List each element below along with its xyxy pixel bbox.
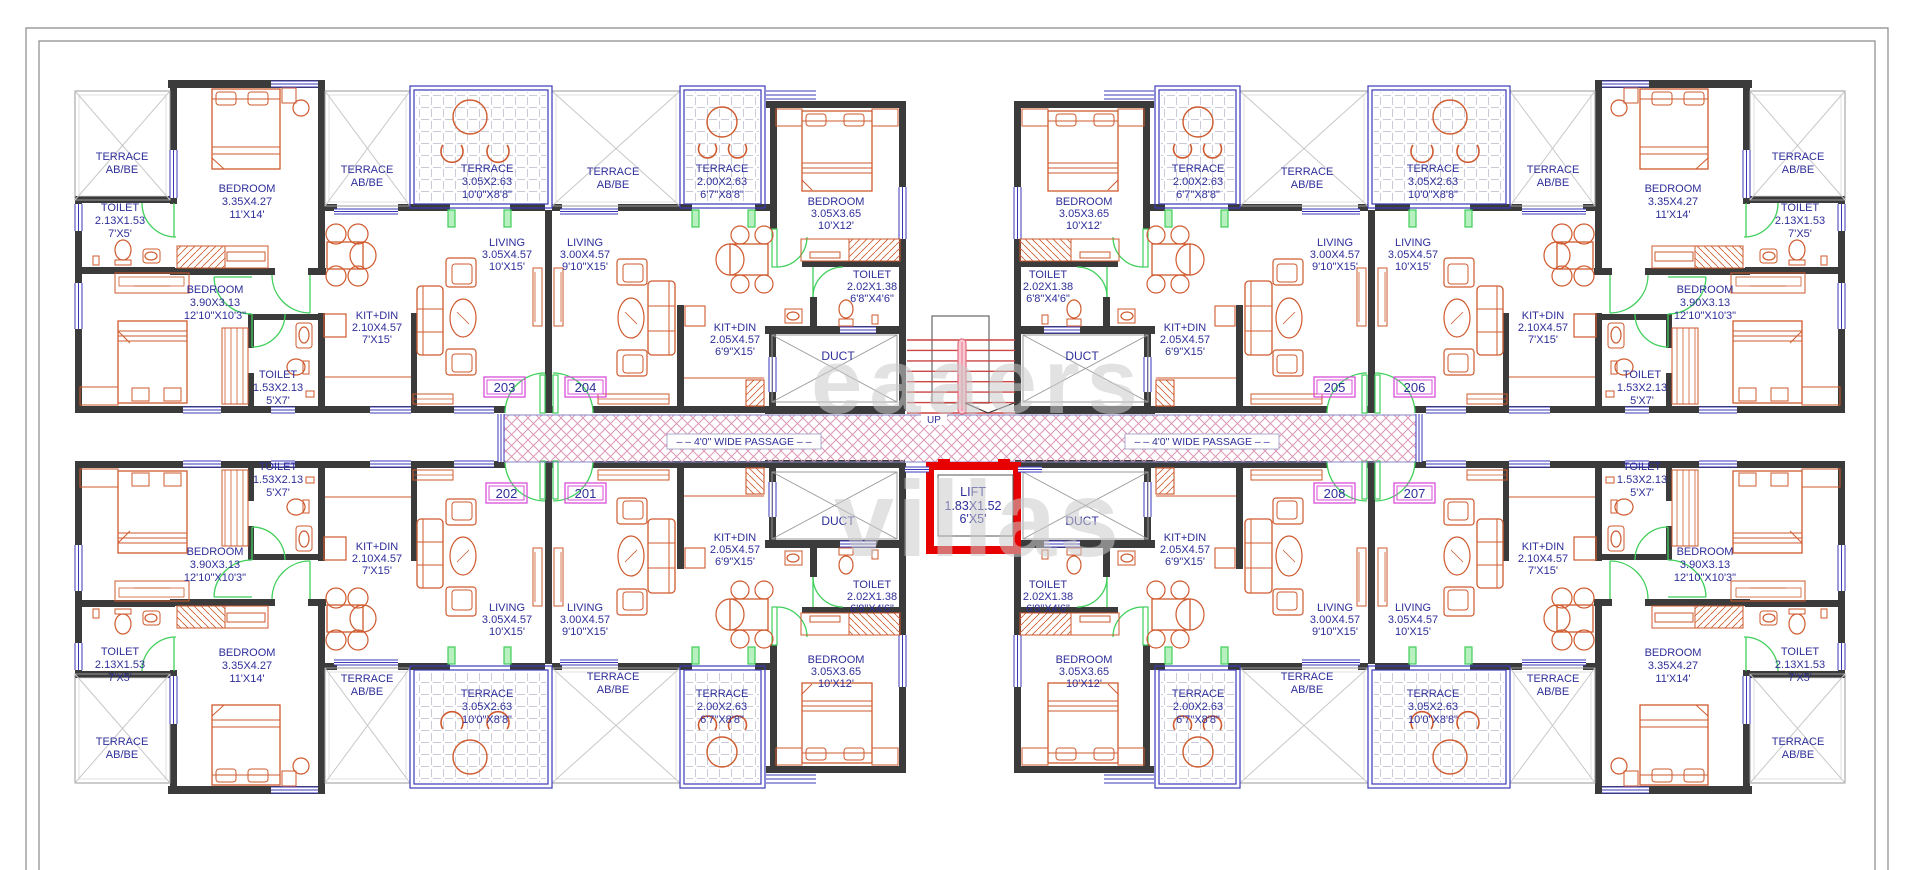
svg-text:7'X5': 7'X5' [108,228,132,240]
svg-text:BEDROOM: BEDROOM [219,183,276,195]
svg-text:KIT+DIN: KIT+DIN [356,541,399,553]
svg-text:2.13X1.53: 2.13X1.53 [95,215,145,227]
svg-text:10'X12': 10'X12' [1066,220,1102,232]
svg-text:LIVING: LIVING [567,602,603,614]
svg-text:TERRACE: TERRACE [1527,164,1580,176]
svg-text:TERRACE: TERRACE [1772,736,1825,748]
svg-text:TOILET: TOILET [101,202,140,214]
svg-text:TERRACE: TERRACE [1172,163,1225,175]
svg-text:2.13X1.53: 2.13X1.53 [1775,215,1825,227]
svg-text:BEDROOM: BEDROOM [1677,284,1734,296]
svg-text:3.35X4.27: 3.35X4.27 [222,660,272,672]
svg-text:2.10X4.57: 2.10X4.57 [1518,322,1568,334]
svg-text:BEDROOM: BEDROOM [187,284,244,296]
svg-text:201: 201 [575,486,597,501]
svg-text:TERRACE: TERRACE [1772,151,1825,163]
svg-text:3.05X3.65: 3.05X3.65 [811,208,861,220]
svg-text:TERRACE: TERRACE [341,164,394,176]
svg-text:2.05X4.57: 2.05X4.57 [710,334,760,346]
svg-text:KIT+DIN: KIT+DIN [356,310,399,322]
svg-text:2.02X1.38: 2.02X1.38 [847,591,897,603]
svg-text:1.53X2.13: 1.53X2.13 [1617,382,1667,394]
svg-text:LIVING: LIVING [1317,602,1353,614]
svg-text:10'X12': 10'X12' [818,220,854,232]
svg-text:3.90X3.13: 3.90X3.13 [190,297,240,309]
svg-text:AB/BE: AB/BE [106,749,138,761]
svg-text:10'0"X8'8": 10'0"X8'8" [462,714,512,726]
svg-text:– – 4'0" WIDE PASSAGE –: – – 4'0" WIDE PASSAGE – – [676,436,811,448]
svg-text:3.00X4.57: 3.00X4.57 [560,249,610,261]
svg-text:6'8"X4'6": 6'8"X4'6" [1026,603,1070,615]
svg-text:2.10X4.57: 2.10X4.57 [352,322,402,334]
svg-text:TERRACE: TERRACE [1407,163,1460,175]
svg-text:AB/BE: AB/BE [1782,164,1814,176]
svg-text:2.00X2.63: 2.00X2.63 [1173,176,1223,188]
svg-text:2.13X1.53: 2.13X1.53 [1775,659,1825,671]
svg-text:TERRACE: TERRACE [696,163,749,175]
svg-text:TOILET: TOILET [259,461,298,473]
svg-text:TOILET: TOILET [853,269,892,281]
svg-text:1.53X2.13: 1.53X2.13 [253,474,303,486]
svg-text:3.05X2.63: 3.05X2.63 [462,701,512,713]
svg-text:BEDROOM: BEDROOM [808,654,865,666]
svg-text:10'X15': 10'X15' [489,626,525,638]
svg-text:TERRACE: TERRACE [1281,166,1334,178]
svg-text:3.90X3.13: 3.90X3.13 [190,559,240,571]
svg-text:TOILET: TOILET [1623,461,1662,473]
svg-text:LIVING: LIVING [567,237,603,249]
svg-text:2.10X4.57: 2.10X4.57 [1518,553,1568,565]
svg-text:205: 205 [1324,380,1346,395]
svg-text:eaaers: eaaers [811,331,1145,433]
svg-text:TOILET: TOILET [1623,369,1662,381]
svg-text:6'7"X8'8": 6'7"X8'8" [700,189,744,201]
svg-text:TOILET: TOILET [259,369,298,381]
svg-text:2.13X1.53: 2.13X1.53 [95,659,145,671]
svg-text:TERRACE: TERRACE [96,736,149,748]
svg-text:9'10"X15': 9'10"X15' [562,261,608,273]
svg-text:6'7"X8'8": 6'7"X8'8" [700,714,744,726]
svg-text:BEDROOM: BEDROOM [1645,647,1702,659]
svg-text:2.10X4.57: 2.10X4.57 [352,553,402,565]
svg-text:10'X12': 10'X12' [1066,678,1102,690]
svg-text:BEDROOM: BEDROOM [1645,183,1702,195]
svg-text:6'9"X15': 6'9"X15' [715,556,755,568]
svg-text:BEDROOM: BEDROOM [808,196,865,208]
svg-text:2.00X2.63: 2.00X2.63 [1173,701,1223,713]
svg-text:12'10"X10'3": 12'10"X10'3" [184,310,246,322]
svg-text:6'9"X15': 6'9"X15' [1165,346,1205,358]
svg-text:3.00X4.57: 3.00X4.57 [560,614,610,626]
svg-text:10'0"X8'8": 10'0"X8'8" [1408,189,1458,201]
svg-text:AB/BE: AB/BE [1537,686,1569,698]
svg-text:1.53X2.13: 1.53X2.13 [1617,474,1667,486]
svg-text:3.90X3.13: 3.90X3.13 [1680,559,1730,571]
svg-text:3.35X4.27: 3.35X4.27 [222,196,272,208]
svg-text:TOILET: TOILET [1781,202,1820,214]
svg-text:KIT+DIN: KIT+DIN [714,322,757,334]
svg-text:KIT+DIN: KIT+DIN [1522,310,1565,322]
svg-text:206: 206 [1404,380,1426,395]
svg-text:LIVING: LIVING [1317,237,1353,249]
svg-text:3.35X4.27: 3.35X4.27 [1648,196,1698,208]
svg-text:10'0"X8'8": 10'0"X8'8" [1408,714,1458,726]
svg-text:2.05X4.57: 2.05X4.57 [1160,544,1210,556]
svg-text:KIT+DIN: KIT+DIN [714,532,757,544]
svg-text:7'X15': 7'X15' [1528,565,1558,577]
svg-text:3.05X4.57: 3.05X4.57 [482,614,532,626]
svg-text:7'X5': 7'X5' [1788,228,1812,240]
svg-text:TERRACE: TERRACE [587,671,640,683]
svg-text:LIVING: LIVING [489,237,525,249]
svg-text:3.05X3.65: 3.05X3.65 [811,666,861,678]
svg-text:11'X14': 11'X14' [229,673,264,685]
svg-text:TOILET: TOILET [101,646,140,658]
svg-text:KIT+DIN: KIT+DIN [1164,322,1207,334]
svg-text:208: 208 [1324,486,1346,501]
svg-text:3.05X2.63: 3.05X2.63 [462,176,512,188]
svg-text:TERRACE: TERRACE [696,688,749,700]
svg-text:TERRACE: TERRACE [1281,671,1334,683]
svg-text:3.00X4.57: 3.00X4.57 [1310,614,1360,626]
svg-text:3.90X3.13: 3.90X3.13 [1680,297,1730,309]
svg-text:7'X15': 7'X15' [362,334,392,346]
svg-text:3.05X4.57: 3.05X4.57 [1388,249,1438,261]
svg-text:AB/BE: AB/BE [351,686,383,698]
svg-text:BEDROOM: BEDROOM [219,647,276,659]
svg-text:AB/BE: AB/BE [351,177,383,189]
svg-text:LIVING: LIVING [1395,602,1431,614]
svg-text:3.00X4.57: 3.00X4.57 [1310,249,1360,261]
svg-text:207: 207 [1404,486,1426,501]
svg-text:AB/BE: AB/BE [1291,179,1323,191]
svg-text:3.05X2.63: 3.05X2.63 [1408,176,1458,188]
svg-text:6'9"X15': 6'9"X15' [715,346,755,358]
svg-text:9'10"X15': 9'10"X15' [1312,261,1358,273]
svg-text:BEDROOM: BEDROOM [187,546,244,558]
svg-text:TERRACE: TERRACE [461,163,514,175]
svg-text:TERRACE: TERRACE [1407,688,1460,700]
svg-text:11'X14': 11'X14' [1655,209,1690,221]
svg-text:3.05X3.65: 3.05X3.65 [1059,208,1109,220]
svg-text:2.02X1.38: 2.02X1.38 [847,281,897,293]
svg-text:BEDROOM: BEDROOM [1056,196,1113,208]
svg-text:10'X15': 10'X15' [1395,261,1431,273]
svg-text:KIT+DIN: KIT+DIN [1164,532,1207,544]
svg-text:2.00X2.63: 2.00X2.63 [697,176,747,188]
svg-text:10'0"X8'8": 10'0"X8'8" [462,189,512,201]
svg-text:LIVING: LIVING [489,602,525,614]
svg-text:10'X15': 10'X15' [1395,626,1431,638]
svg-text:6'7"X8'8": 6'7"X8'8" [1176,714,1220,726]
svg-text:TERRACE: TERRACE [1172,688,1225,700]
svg-text:204: 204 [575,380,597,395]
svg-text:2.02X1.38: 2.02X1.38 [1023,281,1073,293]
svg-text:5'X7': 5'X7' [1630,487,1654,499]
svg-text:5'X7': 5'X7' [266,487,290,499]
svg-text:3.05X4.57: 3.05X4.57 [482,249,532,261]
svg-text:3.05X2.63: 3.05X2.63 [1408,701,1458,713]
svg-text:TOILET: TOILET [1029,269,1068,281]
svg-text:6'8"X4'6": 6'8"X4'6" [850,293,894,305]
svg-text:TERRACE: TERRACE [587,166,640,178]
svg-text:villas: villas [834,458,1122,579]
svg-text:12'10"X10'3": 12'10"X10'3" [1674,572,1736,584]
svg-text:TOILET: TOILET [1029,579,1068,591]
svg-text:12'10"X10'3": 12'10"X10'3" [1674,310,1736,322]
svg-text:AB/BE: AB/BE [597,684,629,696]
svg-text:1.53X2.13: 1.53X2.13 [253,382,303,394]
svg-text:6'8"X4'6": 6'8"X4'6" [850,603,894,615]
svg-text:TERRACE: TERRACE [1527,673,1580,685]
svg-text:AB/BE: AB/BE [106,164,138,176]
svg-text:TERRACE: TERRACE [96,151,149,163]
svg-text:5'X7': 5'X7' [1630,395,1654,407]
svg-text:TERRACE: TERRACE [341,673,394,685]
svg-text:202: 202 [496,486,518,501]
svg-text:203: 203 [494,380,516,395]
svg-text:KIT+DIN: KIT+DIN [1522,541,1565,553]
svg-text:7'X5': 7'X5' [1788,672,1812,684]
svg-text:10'X15': 10'X15' [489,261,525,273]
svg-text:5'X7': 5'X7' [266,395,290,407]
svg-text:9'10"X15': 9'10"X15' [1312,626,1358,638]
svg-text:11'X14': 11'X14' [229,209,264,221]
svg-text:6'7"X8'8": 6'7"X8'8" [1176,189,1220,201]
svg-text:LIVING: LIVING [1395,237,1431,249]
svg-text:BEDROOM: BEDROOM [1056,654,1113,666]
svg-text:AB/BE: AB/BE [1537,177,1569,189]
svg-text:7'X15': 7'X15' [1528,334,1558,346]
svg-text:2.05X4.57: 2.05X4.57 [710,544,760,556]
svg-text:2.00X2.63: 2.00X2.63 [697,701,747,713]
svg-text:2.05X4.57: 2.05X4.57 [1160,334,1210,346]
svg-text:2.02X1.38: 2.02X1.38 [1023,591,1073,603]
svg-text:3.35X4.27: 3.35X4.27 [1648,660,1698,672]
svg-text:3.05X3.65: 3.05X3.65 [1059,666,1109,678]
svg-text:7'X15': 7'X15' [362,565,392,577]
svg-text:AB/BE: AB/BE [597,179,629,191]
svg-text:7'X5': 7'X5' [108,672,132,684]
svg-text:AB/BE: AB/BE [1782,749,1814,761]
svg-text:TOILET: TOILET [853,579,892,591]
svg-text:BEDROOM: BEDROOM [1677,546,1734,558]
svg-text:9'10"X15': 9'10"X15' [562,626,608,638]
svg-text:6'9"X15': 6'9"X15' [1165,556,1205,568]
svg-text:AB/BE: AB/BE [1291,684,1323,696]
svg-text:– – 4'0" WIDE PASSAGE –: – – 4'0" WIDE PASSAGE – – [1134,436,1269,448]
svg-text:TERRACE: TERRACE [461,688,514,700]
svg-text:12'10"X10'3": 12'10"X10'3" [184,572,246,584]
svg-text:TOILET: TOILET [1781,646,1820,658]
svg-text:3.05X4.57: 3.05X4.57 [1388,614,1438,626]
svg-text:10'X12': 10'X12' [818,678,854,690]
svg-text:6'8"X4'6": 6'8"X4'6" [1026,293,1070,305]
svg-text:11'X14': 11'X14' [1655,673,1690,685]
